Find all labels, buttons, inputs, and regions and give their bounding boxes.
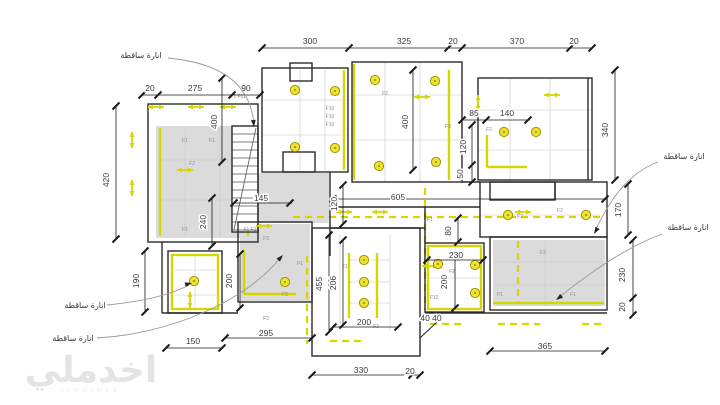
- light-direction-arrowhead: [372, 210, 377, 215]
- dimension-text: 150: [186, 336, 200, 346]
- dimension-text: 365: [538, 341, 552, 351]
- dimension-text: 20: [145, 83, 155, 93]
- dimension-text: 240: [198, 215, 208, 229]
- dimension-text: 370: [510, 36, 524, 46]
- leader-line: [420, 321, 438, 338]
- light-direction-arrowhead: [476, 95, 481, 100]
- light-direction-arrowhead: [130, 143, 135, 148]
- annotation-leader-line: [595, 162, 658, 231]
- fixture-code-label: F10: [326, 106, 335, 112]
- dropped-ceiling-area: [259, 173, 329, 223]
- fixture-code-label: F1: [570, 292, 576, 298]
- dimension-text: 85: [469, 108, 479, 118]
- wall: [480, 182, 607, 237]
- dimension-text: 275: [188, 83, 202, 93]
- dimension-text: 200: [224, 274, 234, 288]
- ceiling-light-fixture-center: [434, 80, 436, 82]
- ceiling-light-fixture-center: [363, 281, 365, 283]
- light-direction-arrowhead: [130, 132, 135, 137]
- dimension-text: 400: [209, 115, 219, 129]
- ceiling-light-fixture-center: [363, 302, 365, 304]
- light-direction-arrowhead: [220, 105, 225, 110]
- dimension-text: 145: [254, 193, 268, 203]
- light-direction-arrowhead: [544, 93, 549, 98]
- ceiling-light-fixture-center: [363, 259, 365, 261]
- wall: [290, 63, 312, 81]
- fixture-code-label: F3: [445, 124, 451, 130]
- fixture-code-label: F2: [486, 127, 492, 133]
- fixture-code-label: F2: [189, 161, 195, 167]
- dimension-text: 605: [391, 192, 405, 202]
- ceiling-light-fixture-center: [474, 292, 476, 294]
- fixture-code-label: F1: [182, 138, 188, 144]
- fixture-code-label: F2: [517, 214, 523, 220]
- dropped-lighting-label: انارة ساقطة: [667, 223, 708, 232]
- light-direction-arrowhead: [188, 105, 193, 110]
- light-direction-arrowhead: [130, 180, 135, 185]
- fixture-code-label: F1 F1: [243, 227, 256, 233]
- fixture-code-label: F1: [427, 217, 433, 223]
- ceiling-light-fixture-center: [284, 281, 286, 283]
- light-direction-arrowhead: [526, 210, 531, 215]
- light-direction-arrowhead: [347, 210, 352, 215]
- dimension-text: 400: [400, 115, 410, 129]
- ceiling-light-fixture-center: [374, 79, 376, 81]
- floorplan-drawing: F1F1F2F1F1 F1F1 F11F10F10F10F2F3F2F1F2F2…: [0, 0, 720, 405]
- dimension-text: 40 40: [420, 313, 442, 323]
- dimension-text: 295: [259, 328, 273, 338]
- ceiling-light-fixture-center: [334, 147, 336, 149]
- dimension-text: 300: [303, 36, 317, 46]
- light-direction-arrowhead: [130, 191, 135, 196]
- dimension-text: 120: [329, 197, 339, 211]
- ceiling-light-fixture-center: [437, 263, 439, 265]
- ceiling-light-fixture-center: [334, 90, 336, 92]
- ceiling-light-fixture-center: [535, 131, 537, 133]
- fixture-code-label: F12: [430, 295, 439, 301]
- floorplan-canvas: F1F1F2F1F1 F1F1 F11F10F10F10F2F3F2F1F2F2…: [0, 0, 720, 405]
- light-direction-arrowhead: [231, 105, 236, 110]
- light-direction-arrowhead: [555, 93, 560, 98]
- dimension-text: 340: [600, 123, 610, 137]
- light-direction-arrowhead: [148, 105, 153, 110]
- dimension-text: 20: [405, 366, 415, 376]
- dimension-text: 190: [131, 274, 141, 288]
- dropped-lighting-label: انارة ساقطة: [663, 152, 704, 161]
- dropped-ceiling-area: [493, 240, 605, 306]
- light-direction-arrowhead: [159, 105, 164, 110]
- fixture-code-label: F2: [449, 269, 455, 275]
- ceiling-light-fixture-center: [474, 264, 476, 266]
- dimension-text: 206: [328, 276, 338, 290]
- ceiling-light-fixture-center: [585, 214, 587, 216]
- fixture-code-label: F10: [326, 122, 335, 128]
- fixture-code-label: F3: [263, 236, 269, 242]
- fixture-code-label: F1: [182, 227, 188, 233]
- dropped-lighting-label: انارة ساقطة: [52, 334, 93, 343]
- fixture-code-label: F2: [382, 91, 388, 97]
- dimension-text: 120: [458, 140, 468, 154]
- dimension-text: 140: [500, 108, 514, 118]
- dimension-text: 200: [357, 317, 371, 327]
- wall: [283, 152, 315, 172]
- ceiling-light-fixture-center: [294, 146, 296, 148]
- ceiling-light-fixture-center: [193, 280, 195, 282]
- dimension-text: 20: [448, 36, 458, 46]
- fixture-code-label: F2: [540, 250, 546, 256]
- ceiling-light-fixture-center: [507, 214, 509, 216]
- ceiling-light-fixture-center: [435, 161, 437, 163]
- ceiling-light-fixture-center: [503, 131, 505, 133]
- dimension-text: 80: [443, 226, 453, 236]
- light-direction-arrowhead: [188, 292, 193, 297]
- ceiling-light-fixture-center: [294, 89, 296, 91]
- fixture-code-label: F3: [282, 292, 288, 298]
- fixture-code-label: F1: [297, 261, 303, 267]
- light-direction-arrowhead: [188, 303, 193, 308]
- dimension-text: 330: [354, 365, 368, 375]
- dropped-lighting-label: انارة ساقطة: [120, 51, 161, 60]
- fixture-code-label: F2: [557, 208, 563, 214]
- dimension-text: 200: [439, 275, 449, 289]
- dimension-text: 455: [314, 277, 324, 291]
- wall: [312, 228, 420, 356]
- dimension-text: 230: [449, 250, 463, 260]
- dimension-text: 420: [101, 173, 111, 187]
- dimension-text: 20: [617, 302, 627, 312]
- fixture-code-label: F3: [263, 316, 269, 322]
- dimension-text: 170: [613, 203, 623, 217]
- wall: [490, 182, 555, 200]
- ceiling-light-fixture-center: [378, 165, 380, 167]
- light-direction-arrowhead: [383, 210, 388, 215]
- dropped-lighting-label: انارة ساقطة: [64, 301, 105, 310]
- dimension-text: 325: [397, 36, 411, 46]
- dimension-text: 50: [455, 169, 465, 179]
- dimension-text: 20: [569, 36, 579, 46]
- light-direction-arrowhead: [199, 105, 204, 110]
- fixture-code-label: F1: [497, 292, 503, 298]
- fixture-code-label: F10: [326, 114, 335, 120]
- annotation-leader-arrowhead: [594, 227, 600, 234]
- wall: [262, 68, 348, 172]
- dimension-text: 230: [617, 268, 627, 282]
- fixture-code-label: F1: [209, 138, 215, 144]
